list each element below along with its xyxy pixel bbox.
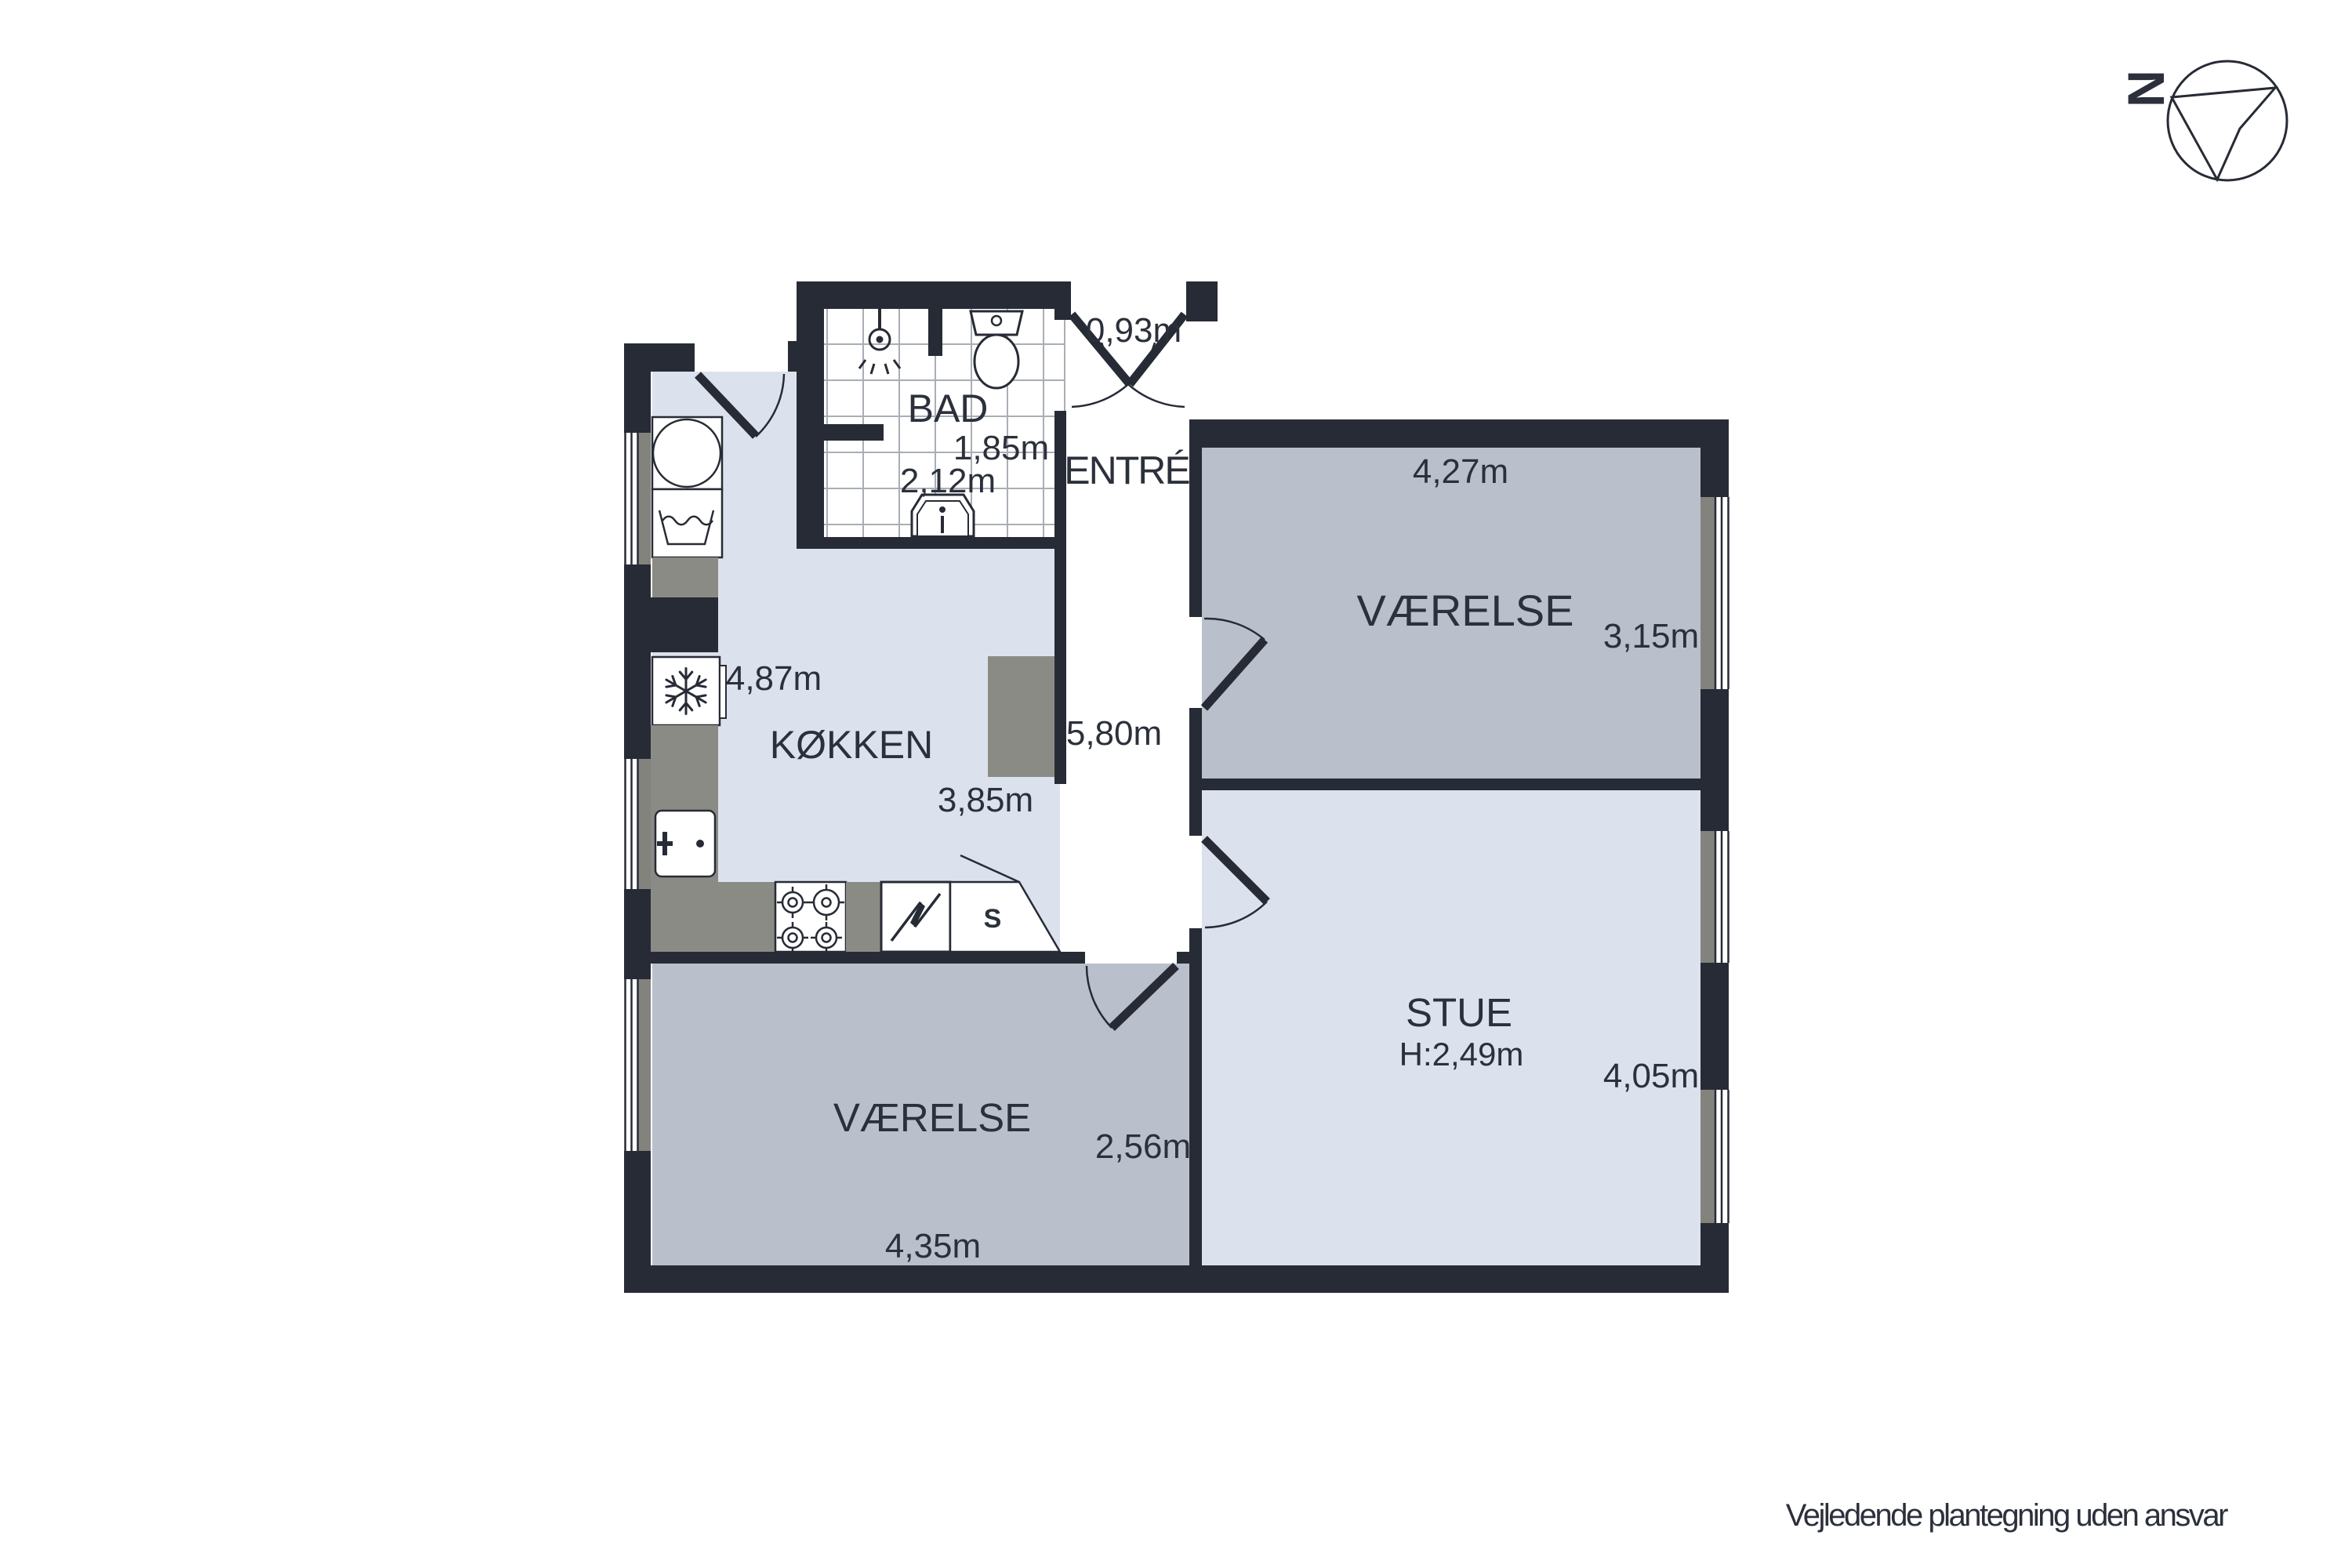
svg-text:S: S [984,904,1002,934]
svg-text:5,80m: 5,80m [1066,714,1162,753]
svg-text:STUE: STUE [1406,990,1512,1035]
svg-text:0,93m: 0,93m [1086,311,1181,350]
svg-text:2,56m: 2,56m [1095,1127,1191,1166]
svg-text:4,05m: 4,05m [1603,1057,1699,1095]
svg-text:4,35m: 4,35m [885,1227,981,1265]
svg-text:4,87m: 4,87m [726,659,822,698]
svg-text:N: N [2117,70,2175,107]
svg-text:Vejledende plantegning uden an: Vejledende plantegning uden ansvar [1786,1498,2228,1533]
svg-text:VÆRELSE: VÆRELSE [833,1095,1031,1140]
svg-text:4,27m: 4,27m [1413,452,1508,491]
svg-text:3,15m: 3,15m [1603,617,1699,655]
svg-text:H:2,49m: H:2,49m [1399,1036,1524,1073]
svg-text:ENTRÉ: ENTRÉ [1064,448,1189,492]
svg-text:2,12m: 2,12m [900,462,996,500]
svg-text:BAD: BAD [908,387,989,430]
svg-text:3,85m: 3,85m [938,781,1033,819]
svg-text:VÆRELSE: VÆRELSE [1357,586,1574,635]
svg-text:KØKKEN: KØKKEN [770,723,933,767]
